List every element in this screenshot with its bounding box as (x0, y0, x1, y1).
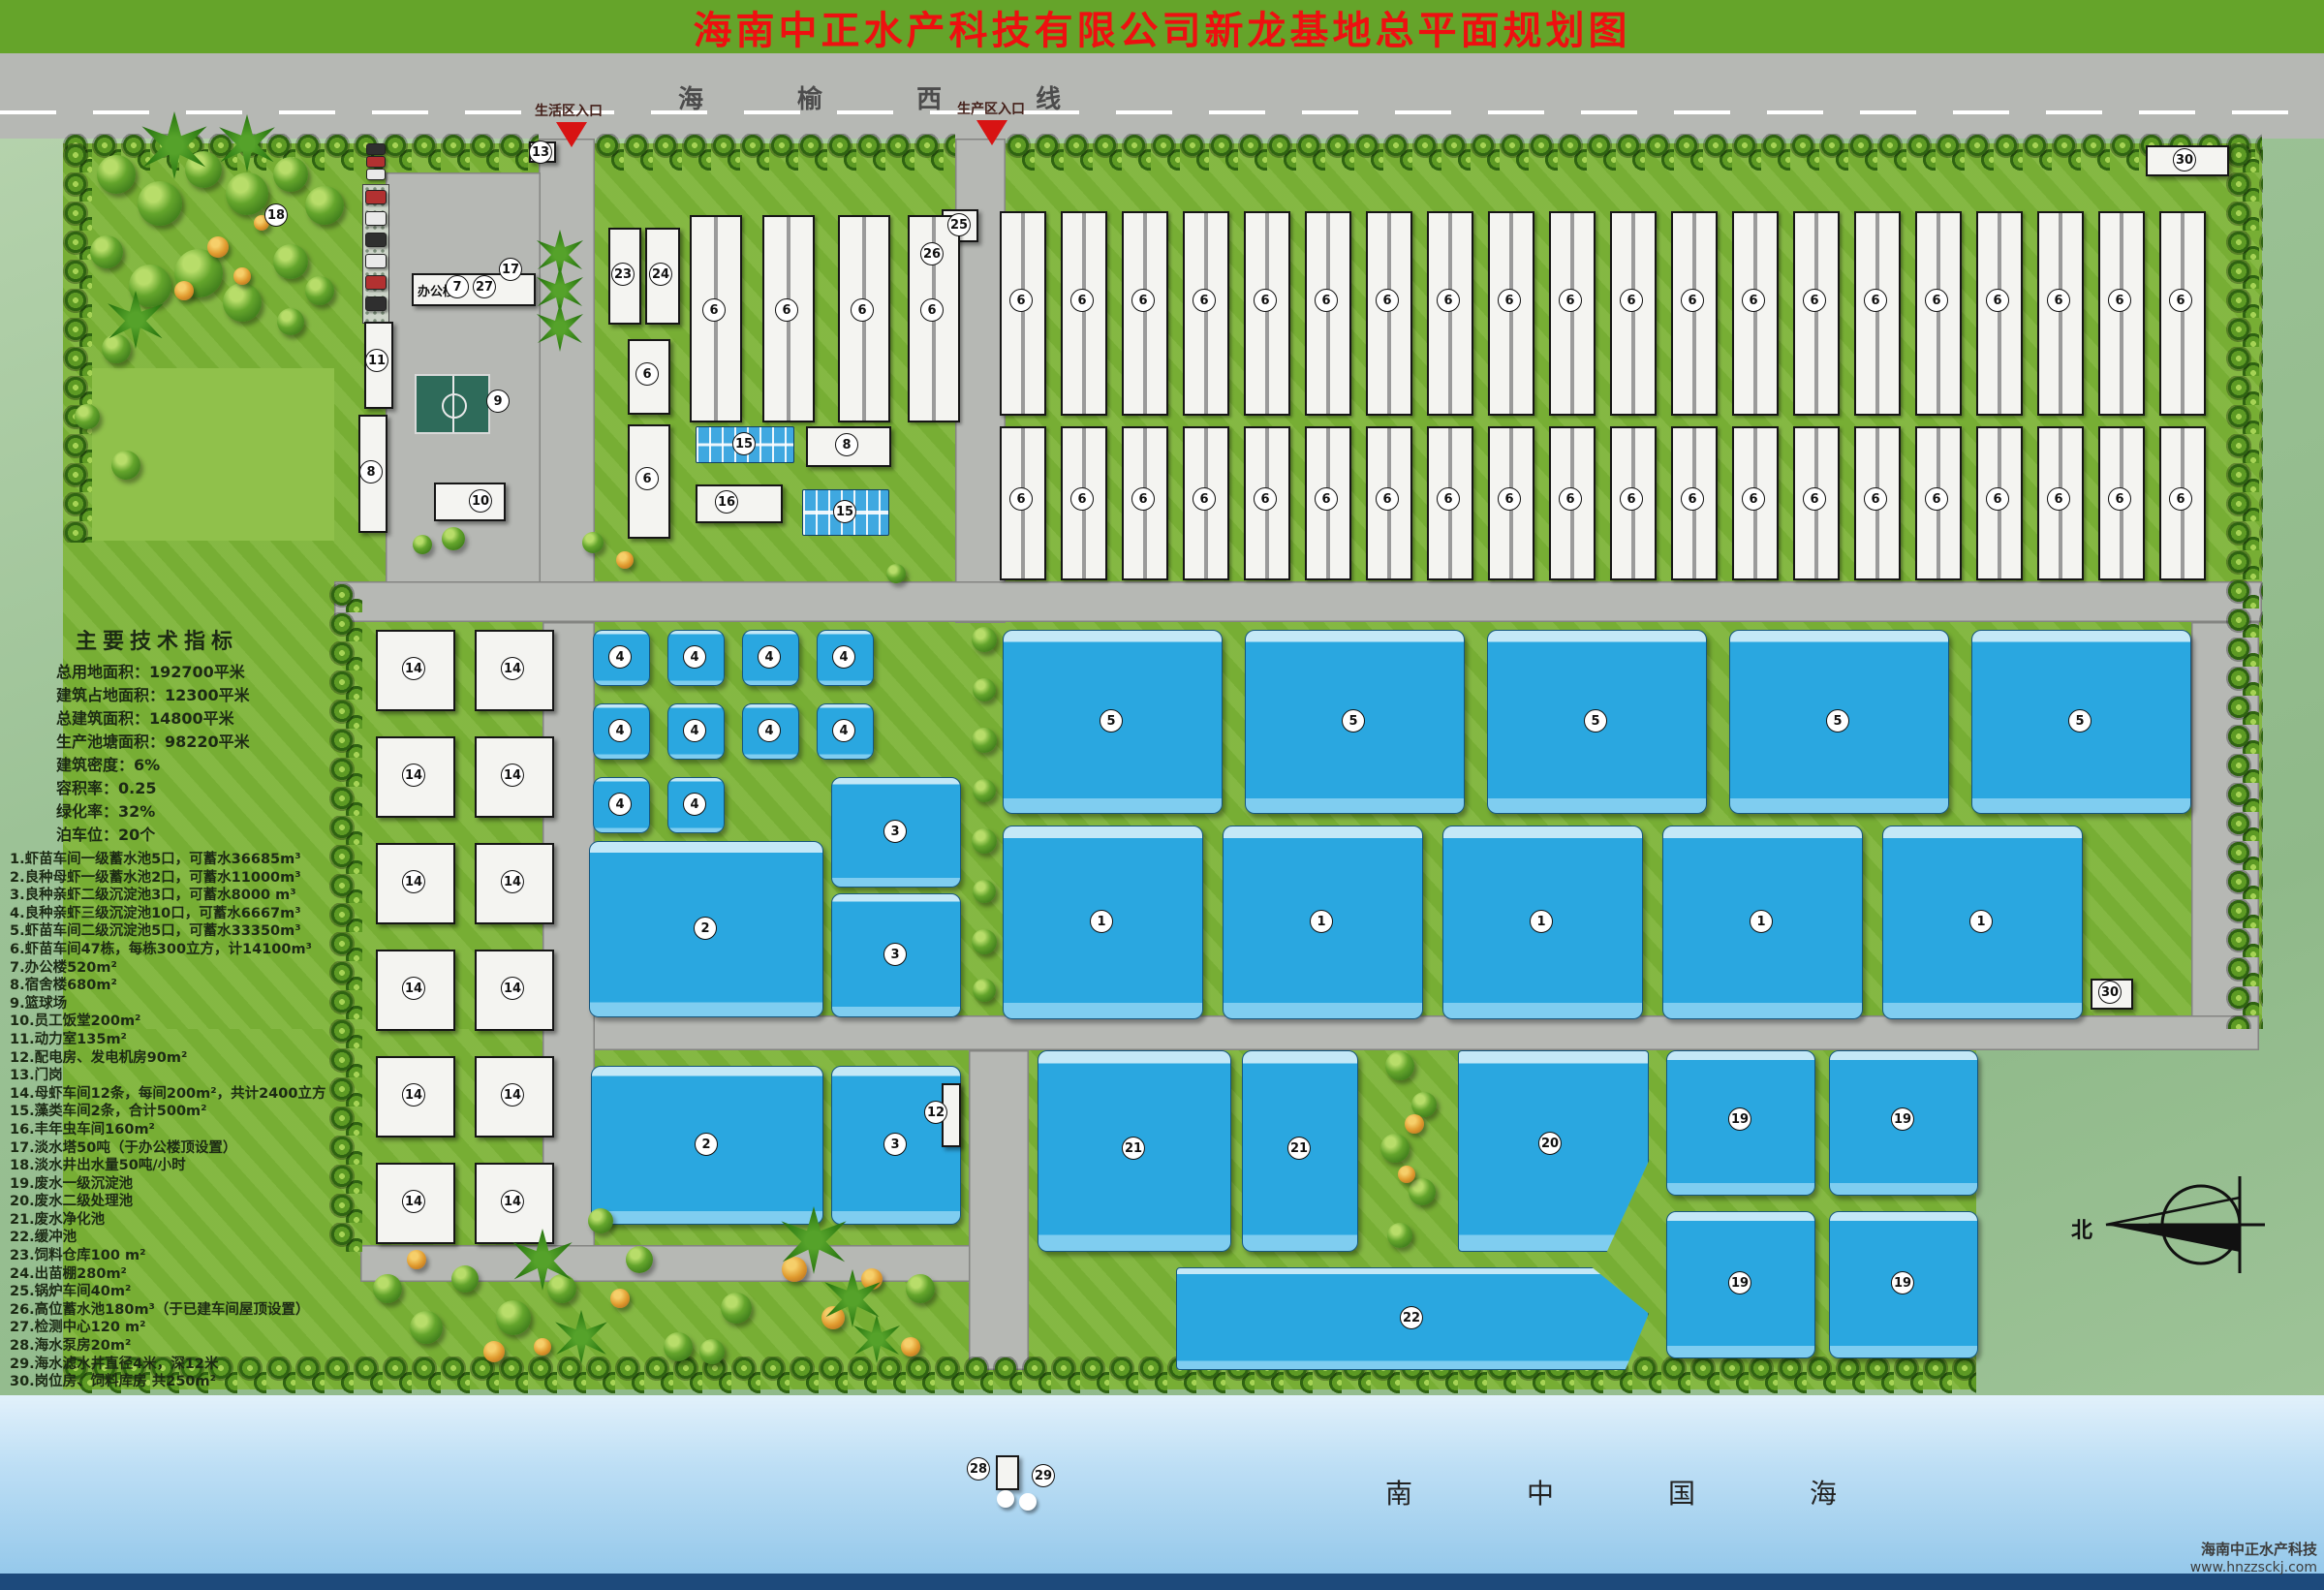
marker-5: 5 (1826, 709, 1849, 733)
marker-6: 6 (1437, 289, 1460, 312)
marker-9: 9 (486, 390, 510, 413)
tree (886, 564, 906, 583)
marker-14: 14 (402, 1083, 425, 1107)
road-center-line (0, 110, 2324, 114)
legend-line: 6.虾苗车间47栋，每栋300立方，计14100m³ (10, 941, 325, 959)
parked-car (365, 275, 387, 290)
marker-6: 6 (1193, 487, 1216, 511)
marker-10: 10 (469, 489, 492, 513)
marker-2: 2 (694, 917, 717, 940)
marker-6: 6 (1559, 487, 1582, 511)
highway-road (0, 53, 2324, 139)
north-label: 北 (2071, 1213, 2092, 1244)
shrimp-workshop-strip (2037, 211, 2084, 416)
tree (972, 828, 997, 854)
marker-6: 6 (1803, 487, 1826, 511)
building (696, 484, 783, 523)
marker-14: 14 (501, 870, 524, 893)
marker-8: 8 (359, 460, 383, 483)
road-v-center (542, 622, 595, 1252)
tree (1380, 1134, 1410, 1163)
entry-prod-arrow-icon (976, 120, 1007, 145)
watermark-company: 海南中正水产科技 (2102, 1541, 2317, 1559)
tree (111, 451, 140, 480)
shrimp-workshop-strip (1061, 211, 1107, 416)
tree (906, 1274, 935, 1303)
watermark-url: www.hnzzsckj.com (2102, 1559, 2317, 1577)
tree (1409, 1178, 1436, 1205)
marker-6: 6 (2047, 289, 2070, 312)
orange-shrub (207, 236, 229, 258)
marker-6: 6 (775, 298, 798, 322)
tree (277, 308, 304, 335)
marker-1: 1 (1090, 910, 1113, 933)
indicator-line: 总用地面积：192700平米 (56, 661, 250, 684)
page-title: 海南中正水产科技有限公司新龙基地总平面规划图 (694, 0, 1631, 55)
sea-filter-well (997, 1490, 1014, 1508)
tree (410, 1311, 443, 1344)
tree (1387, 1223, 1412, 1248)
marker-4: 4 (758, 645, 781, 669)
marker-1: 1 (1750, 910, 1773, 933)
marker-26: 26 (920, 242, 944, 265)
shrimp-workshop-strip (1671, 211, 1718, 416)
shrimp-workshop-strip (1488, 211, 1534, 416)
marker-6: 6 (1925, 487, 1948, 511)
legend-line: 25.锅炉车间40m² (10, 1283, 325, 1301)
shrimp-workshop-strip (1732, 211, 1779, 416)
indicators-heading: 主要技术指标 (76, 624, 238, 655)
marker-8: 8 (835, 433, 858, 456)
marker-25: 25 (947, 213, 971, 236)
legend-line: 24.出苗棚280m² (10, 1265, 325, 1284)
gate-structure (366, 143, 386, 155)
tree (273, 157, 308, 192)
shrimp-workshop-strip (1854, 211, 1901, 416)
tree-row (1006, 134, 2262, 171)
marker-6: 6 (1193, 289, 1216, 312)
marker-5: 5 (2068, 709, 2092, 733)
tree (305, 186, 344, 225)
site-plan: 海南中正水产科技有限公司新龙基地总平面规划图 海 榆 西 线 生活区入口 生产区… (0, 0, 2324, 1590)
entry-prod-label: 生产区入口 (957, 99, 1025, 118)
marker-19: 19 (1891, 1271, 1914, 1294)
shrimp-workshop-strip (1915, 211, 1962, 416)
orange-shrub (1405, 1114, 1424, 1134)
marker-22: 22 (1400, 1306, 1423, 1329)
marker-30: 30 (2173, 148, 2196, 171)
legend-line: 27.检测中心120 m² (10, 1319, 325, 1337)
legend-line: 12.配电房、发电机房90m² (10, 1049, 325, 1068)
tree (496, 1300, 531, 1335)
marker-13: 13 (529, 140, 552, 164)
road-v-pond (969, 1050, 1029, 1370)
tree (305, 276, 334, 305)
tree (90, 235, 123, 268)
tree (273, 244, 308, 279)
marker-16: 16 (715, 490, 738, 514)
orange-shrub (616, 551, 634, 569)
tree (442, 527, 465, 550)
marker-6: 6 (1925, 289, 1948, 312)
tree (226, 172, 268, 215)
marker-27: 27 (473, 275, 496, 298)
shrimp-workshop-strip (1976, 211, 2023, 416)
marker-6: 6 (1009, 289, 1033, 312)
marker-6: 6 (1009, 487, 1033, 511)
road-v-life (539, 139, 595, 583)
marker-19: 19 (1728, 1107, 1751, 1131)
tree (102, 334, 131, 363)
marker-6: 6 (1986, 289, 2009, 312)
sea-filter-well (1019, 1493, 1037, 1511)
tree-column-left (63, 143, 92, 543)
marker-14: 14 (501, 764, 524, 787)
indicator-line: 建筑占地面积：12300平米 (56, 684, 250, 707)
tree-row (595, 134, 955, 171)
marker-14: 14 (501, 1190, 524, 1213)
marker-6: 6 (1070, 289, 1094, 312)
marker-5: 5 (1342, 709, 1365, 733)
legend-line: 9.篮球场 (10, 995, 325, 1013)
tree (75, 404, 100, 429)
marker-23: 23 (611, 263, 635, 286)
sea-bottom-bar (0, 1574, 2324, 1590)
basketball-court (415, 374, 490, 434)
legend-line: 21.废水净化池 (10, 1211, 325, 1230)
marker-19: 19 (1728, 1271, 1751, 1294)
tree (721, 1293, 752, 1324)
marker-4: 4 (832, 645, 855, 669)
marker-6: 6 (2108, 487, 2131, 511)
marker-6: 6 (2047, 487, 2070, 511)
watermark: 海南中正水产科技 www.hnzzsckj.com (2102, 1541, 2317, 1577)
legend-line: 23.饲料仓库100 m² (10, 1247, 325, 1265)
indicator-line: 建筑密度：6% (56, 754, 250, 777)
sea (0, 1395, 2324, 1590)
marker-14: 14 (402, 870, 425, 893)
orange-shrub (233, 267, 251, 285)
legend-line: 17.淡水塔50吨（于办公楼顶设置） (10, 1139, 325, 1158)
marker-4: 4 (608, 645, 632, 669)
gate-structure (366, 156, 386, 168)
tree (582, 532, 604, 553)
shrimp-workshop-strip (1122, 211, 1168, 416)
compass (2092, 1174, 2267, 1275)
marker-11: 11 (365, 349, 388, 372)
marker-18: 18 (264, 203, 288, 227)
tree (973, 779, 996, 802)
orange-shrub (534, 1338, 551, 1356)
marker-14: 14 (402, 1190, 425, 1213)
tree (973, 880, 996, 903)
marker-29: 29 (1032, 1464, 1055, 1487)
legend-line: 1.虾苗车间一级蓄水池5口，可蓄水36685m³ (10, 851, 325, 869)
tree (664, 1332, 693, 1361)
marker-3: 3 (883, 943, 907, 966)
parked-car (365, 296, 387, 311)
marker-4: 4 (683, 793, 706, 816)
indicator-line: 泊车位：20个 (56, 824, 250, 847)
legend-list: 1.虾苗车间一级蓄水池5口，可蓄水36685m³2.良种母虾一级蓄水池2口，可蓄… (10, 851, 325, 1391)
marker-6: 6 (635, 362, 659, 386)
marker-14: 14 (501, 977, 524, 1000)
marker-6: 6 (1803, 289, 1826, 312)
legend-line: 13.门岗 (10, 1067, 325, 1085)
marker-12: 12 (924, 1101, 947, 1124)
marker-4: 4 (683, 719, 706, 742)
marker-6: 6 (1131, 487, 1155, 511)
marker-24: 24 (649, 263, 672, 286)
parked-car (365, 233, 387, 247)
legend-line: 7.办公楼520m² (10, 959, 325, 978)
shrimp-workshop-strip (2159, 211, 2206, 416)
orange-shrub (174, 281, 194, 300)
marker-6: 6 (1376, 487, 1399, 511)
marker-6: 6 (851, 298, 874, 322)
marker-7: 7 (446, 275, 469, 298)
parked-car (365, 254, 387, 268)
marker-14: 14 (402, 977, 425, 1000)
tree (973, 678, 996, 701)
shrimp-workshop-strip (2098, 211, 2145, 416)
marker-15: 15 (833, 500, 856, 523)
marker-4: 4 (683, 645, 706, 669)
legend-line: 10.员工饭堂200m² (10, 1013, 325, 1031)
indicator-line: 总建筑面积：14800平米 (56, 707, 250, 731)
legend-line: 15.藻类车间2条，合计500m² (10, 1103, 325, 1121)
orange-shrub (483, 1341, 505, 1362)
tree-column-mid (329, 583, 362, 1252)
marker-6: 6 (1315, 289, 1338, 312)
legend-line: 8.宿舍楼680m² (10, 977, 325, 995)
tree (451, 1265, 479, 1293)
marker-5: 5 (1584, 709, 1607, 733)
legend-line: 5.虾苗车间二级沉淀池5口，可蓄水33350m³ (10, 922, 325, 941)
legend-line: 30.岗位房、饲料库房 共250m² (10, 1373, 325, 1391)
shrimp-workshop-strip (1793, 211, 1840, 416)
marker-20: 20 (1538, 1132, 1562, 1155)
indicator-line: 生产池塘面积：98220平米 (56, 731, 250, 754)
marker-6: 6 (1254, 289, 1277, 312)
marker-6: 6 (1986, 487, 2009, 511)
marker-3: 3 (883, 820, 907, 843)
north-arrow-icon (2092, 1174, 2267, 1275)
shrimp-workshop-strip (1427, 211, 1473, 416)
legend-line: 19.废水一级沉淀池 (10, 1175, 325, 1194)
shrimp-workshop-strip (1366, 211, 1412, 416)
tree (588, 1208, 613, 1233)
shrimp-workshop-strip (1183, 211, 1229, 416)
tree (1385, 1051, 1414, 1080)
marker-4: 4 (608, 793, 632, 816)
marker-14: 14 (501, 1083, 524, 1107)
legend-line: 26.高位蓄水池180m³（于已建车间屋顶设置） (10, 1301, 325, 1320)
marker-4: 4 (832, 719, 855, 742)
marker-14: 14 (402, 764, 425, 787)
marker-6: 6 (1559, 289, 1582, 312)
shrimp-workshop-strip (1305, 211, 1351, 416)
tree (413, 535, 432, 554)
marker-2: 2 (695, 1133, 718, 1156)
legend-line: 4.良种亲虾三级沉淀池10口，可蓄水6667m³ (10, 905, 325, 923)
sea-label: 南中国海 (1385, 1473, 1951, 1512)
indicator-line: 容积率：0.25 (56, 777, 250, 800)
marker-30: 30 (2098, 981, 2122, 1004)
marker-5: 5 (1100, 709, 1123, 733)
legend-line: 22.缓冲池 (10, 1229, 325, 1247)
marker-6: 6 (1315, 487, 1338, 511)
entry-life-arrow-icon (556, 122, 587, 147)
marker-6: 6 (635, 467, 659, 490)
marker-15: 15 (732, 432, 756, 455)
tree (223, 283, 262, 322)
marker-21: 21 (1122, 1137, 1145, 1160)
marker-6: 6 (2108, 289, 2131, 312)
parked-car (365, 211, 387, 226)
tree-row-bottom (63, 1356, 1976, 1393)
marker-4: 4 (608, 719, 632, 742)
building (996, 1455, 1019, 1490)
marker-6: 6 (1681, 487, 1704, 511)
parked-car (365, 190, 387, 204)
tree (138, 181, 182, 226)
shrimp-workshop-strip (1610, 211, 1657, 416)
marker-6: 6 (2169, 289, 2192, 312)
indicator-line: 绿化率：32% (56, 800, 250, 824)
road-name-label: 海 榆 西 线 (678, 79, 1103, 115)
marker-4: 4 (758, 719, 781, 742)
tree (699, 1339, 725, 1364)
tree (972, 627, 997, 652)
marker-6: 6 (1742, 289, 1765, 312)
legend-line: 16.丰年虫车间160m² (10, 1121, 325, 1139)
orange-shrub (610, 1289, 630, 1308)
tree (972, 929, 997, 954)
entry-life-label: 生活区入口 (535, 101, 603, 120)
marker-1: 1 (1530, 910, 1553, 933)
road-h-lower (581, 1015, 2259, 1050)
indicators-list: 总用地面积：192700平米建筑占地面积：12300平米总建筑面积：14800平… (56, 661, 250, 847)
road-h-mid (334, 581, 2262, 622)
marker-6: 6 (1498, 487, 1521, 511)
marker-17: 17 (499, 258, 522, 281)
marker-6: 6 (702, 298, 726, 322)
tree (373, 1274, 402, 1303)
legend-line: 14.母虾车间12条，每间200m²，共计2400立方 (10, 1085, 325, 1104)
tree (973, 979, 996, 1002)
shrimp-workshop-strip (1549, 211, 1596, 416)
marker-6: 6 (1376, 289, 1399, 312)
tree (972, 728, 997, 753)
legend-line: 28.海水泵房20m² (10, 1337, 325, 1356)
marker-6: 6 (1437, 487, 1460, 511)
marker-14: 14 (501, 657, 524, 680)
tree (626, 1246, 653, 1273)
marker-6: 6 (1620, 487, 1643, 511)
legend-line: 29.海水滤水井直径4米，深12米 (10, 1356, 325, 1374)
tree-column-right (2226, 143, 2263, 1029)
marker-28: 28 (967, 1457, 990, 1481)
marker-6: 6 (2169, 487, 2192, 511)
marker-6: 6 (920, 298, 944, 322)
shrimp-workshop-strip (1000, 211, 1046, 416)
marker-6: 6 (1742, 487, 1765, 511)
marker-14: 14 (402, 657, 425, 680)
tree (97, 155, 136, 194)
gate-structure (366, 169, 386, 180)
legend-line: 18.淡水井出水量50吨/小时 (10, 1157, 325, 1175)
marker-6: 6 (1131, 289, 1155, 312)
legend-line: 11.动力室135m² (10, 1031, 325, 1049)
marker-6: 6 (1070, 487, 1094, 511)
marker-6: 6 (1254, 487, 1277, 511)
orange-shrub (407, 1250, 426, 1269)
tree (547, 1274, 576, 1303)
marker-3: 3 (883, 1133, 907, 1156)
marker-21: 21 (1287, 1137, 1311, 1160)
legend-line: 3.良种亲虾二级沉淀池3口，可蓄水8000 m³ (10, 887, 325, 905)
marker-19: 19 (1891, 1107, 1914, 1131)
marker-1: 1 (1969, 910, 1993, 933)
marker-6: 6 (1498, 289, 1521, 312)
orange-shrub (901, 1337, 920, 1356)
marker-1: 1 (1310, 910, 1333, 933)
legend-line: 2.良种母虾一级蓄水池2口，可蓄水11000m³ (10, 869, 325, 888)
marker-6: 6 (1864, 487, 1887, 511)
shrimp-workshop-strip (1244, 211, 1290, 416)
title-bar: 海南中正水产科技有限公司新龙基地总平面规划图 (0, 0, 2324, 53)
marker-6: 6 (1620, 289, 1643, 312)
orange-shrub (1398, 1166, 1415, 1183)
legend-line: 20.废水二级处理池 (10, 1193, 325, 1211)
marker-6: 6 (1681, 289, 1704, 312)
marker-6: 6 (1864, 289, 1887, 312)
